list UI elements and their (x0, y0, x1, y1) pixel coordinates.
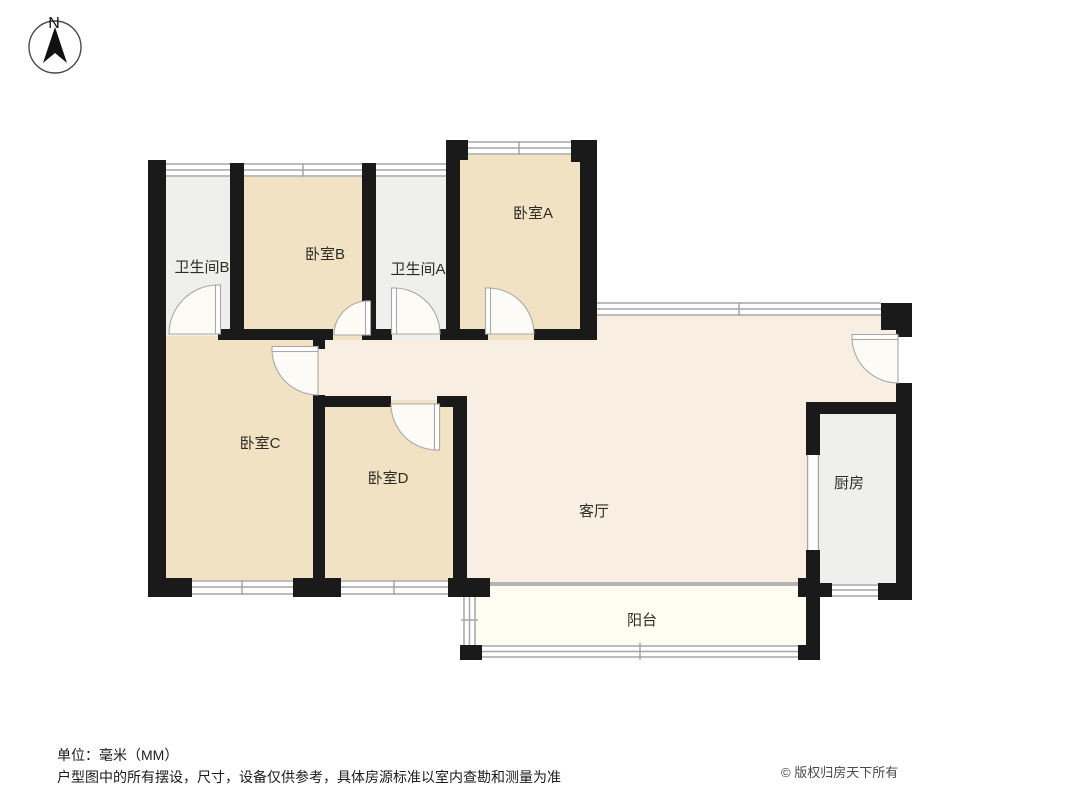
room-label-balcony: 阳台 (627, 612, 657, 629)
window-bedroom-c (192, 580, 293, 595)
wall-hall-north-4 (534, 329, 597, 340)
window-bathroom-b (166, 163, 230, 177)
footer-copyright: © 版权归房天下所有 (781, 762, 898, 781)
footer-unit-note: 单位：毫米（MM） (57, 745, 178, 765)
wall-beda-corner-tl (446, 140, 468, 160)
room-label-bedroom-a: 卧室A (513, 205, 553, 222)
wall-bottom-2 (293, 578, 341, 597)
wall-bedd-right (453, 396, 467, 587)
wall-bottom-3 (448, 578, 490, 597)
wall-right-exterior (896, 383, 912, 600)
window-balcony-left (461, 597, 478, 645)
window-living-room (597, 302, 881, 316)
room-label-living-room: 客厅 (579, 503, 609, 520)
room-label-bathroom-a: 卫生间A (390, 261, 445, 278)
window-kitchen (832, 584, 878, 597)
window-bathroom-a (376, 163, 446, 177)
compass: N (29, 15, 81, 73)
wall-balcony-corner-bl (460, 645, 482, 660)
window-balcony-bottom (482, 643, 798, 660)
balcony-opening-line (490, 582, 798, 586)
room-label-bedroom-c: 卧室C (240, 435, 281, 452)
room-label-bedroom-b: 卧室B (305, 246, 345, 263)
wall-beda-right (580, 140, 597, 340)
wall-corner-tr (881, 303, 912, 330)
wall-hall-north-2 (368, 329, 392, 340)
wall-bedc-bedd (313, 395, 325, 587)
wall-kitchen-top (815, 402, 896, 414)
wall-balcony-corner-br (798, 645, 820, 660)
wall-batha-beda (446, 155, 460, 340)
window-bedroom-a (468, 141, 571, 155)
wall-hall-north-3 (440, 329, 488, 340)
wall-left-exterior (148, 160, 166, 597)
window-bedroom-d (341, 580, 448, 595)
wall-bottom-1 (148, 578, 192, 597)
room-label-kitchen: 厨房 (834, 475, 864, 492)
wall-kitchen-corner-br (878, 583, 912, 600)
wall-hall-north-1 (218, 329, 333, 340)
kitchen-opening (806, 455, 820, 550)
floorplan-page: N (0, 0, 1066, 800)
window-bedroom-b (244, 163, 362, 177)
wall-kitchen-left-upper (806, 402, 820, 455)
wall-kitchen-left-lower (806, 550, 820, 660)
wall-kitchen-bottom-stub (820, 583, 832, 597)
compass-north-label: N (48, 15, 60, 32)
wall-bedd-top-1 (325, 396, 391, 407)
room-kitchen (816, 410, 898, 586)
room-label-bedroom-d: 卧室D (368, 470, 409, 487)
wall-bathb-bedb (230, 163, 244, 340)
floor-plan-svg: N (0, 0, 1066, 740)
room-label-bathroom-b: 卫生间B (174, 259, 229, 276)
footer-disclaimer: 户型图中的所有摆设，尺寸，设备仅供参考，具体房源标准以室内查勘和测量为准 (57, 767, 561, 787)
